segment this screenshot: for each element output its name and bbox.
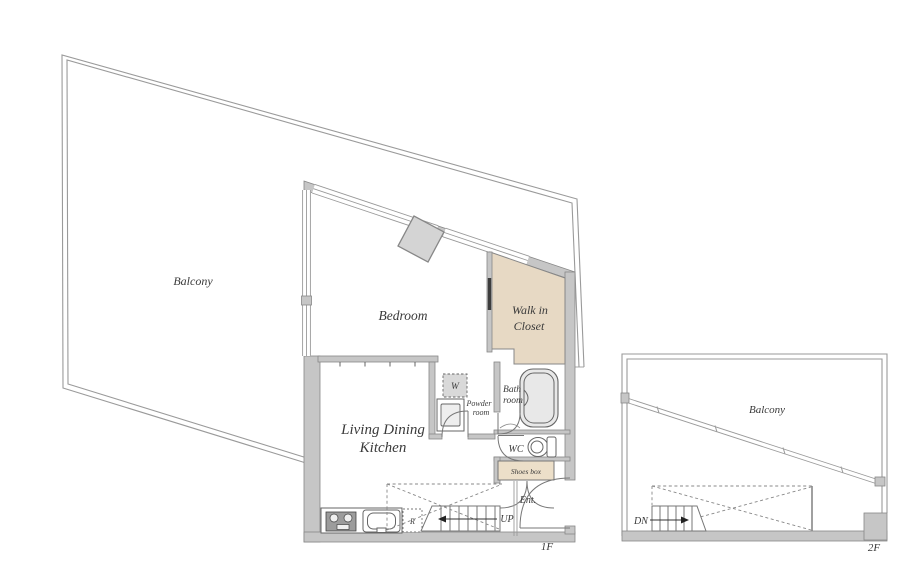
down-label: DN	[633, 516, 649, 527]
toilet	[528, 437, 556, 457]
walk-in-closet-label-2: Closet	[514, 319, 545, 333]
walk-in-closet-label-1: Walk in	[512, 303, 548, 317]
vanity-sink	[437, 399, 464, 431]
washer-label: W	[451, 382, 460, 392]
floor-2f-plan: Balcony DN 2F	[621, 354, 887, 554]
east-wall-upper	[565, 272, 575, 480]
bath-room-label-2: room	[503, 396, 523, 406]
west-ldk-wall	[304, 356, 320, 542]
corner-block-2f	[864, 513, 887, 540]
bedroom-west-window	[302, 190, 312, 356]
floor-1f-plan: Balcony	[62, 55, 584, 553]
floor-1f-label: 1F	[541, 541, 554, 553]
powder-room-label-1: Powder	[466, 399, 493, 408]
south-wall-2f	[622, 531, 887, 541]
bath-room-label-1: Bath	[503, 385, 521, 395]
powder-west-wall	[429, 362, 435, 438]
powder-room-label-2: room	[473, 408, 490, 417]
window-end-block	[875, 477, 885, 486]
window-mullion	[302, 296, 312, 305]
east-wall-lower	[565, 526, 575, 534]
entrance-label: Ent.	[519, 495, 536, 506]
kitchen-sink	[363, 510, 400, 533]
ldk-label-1: Living Dining	[340, 422, 425, 438]
powder-bath-divider	[494, 362, 500, 412]
floor-2f-label: 2F	[868, 542, 881, 554]
stairs-2f: DN	[633, 506, 706, 531]
up-label: UP	[500, 514, 513, 525]
refrigerator-space: R	[403, 509, 422, 532]
bedroom-sliding-door-ticks	[340, 362, 415, 367]
stove	[326, 512, 356, 531]
balcony-2f-label: Balcony	[749, 404, 785, 416]
ldk-label-2: Kitchen	[359, 440, 407, 456]
refrigerator-label: R	[409, 517, 415, 526]
wc-shoes-divider	[494, 457, 570, 461]
powder-south-wall-right	[468, 434, 495, 439]
window-end-block	[621, 393, 629, 403]
shoes-box: Shoes box	[498, 461, 554, 480]
floor-plan-canvas: Balcony	[0, 0, 923, 588]
washer-space: W	[443, 374, 467, 397]
bedroom-label: Bedroom	[379, 308, 428, 323]
bedroom-south-wall	[318, 356, 438, 362]
closet-sliding-door	[488, 278, 491, 310]
entrance-step-lines	[514, 481, 517, 536]
bedroom-closet-divider	[487, 252, 492, 352]
shoes-box-label: Shoes box	[511, 467, 542, 476]
window-line	[444, 233, 527, 261]
wc-label: WC	[509, 444, 524, 455]
balcony-1f-label: Balcony	[173, 274, 213, 288]
powder-south-wall-left	[429, 434, 442, 439]
